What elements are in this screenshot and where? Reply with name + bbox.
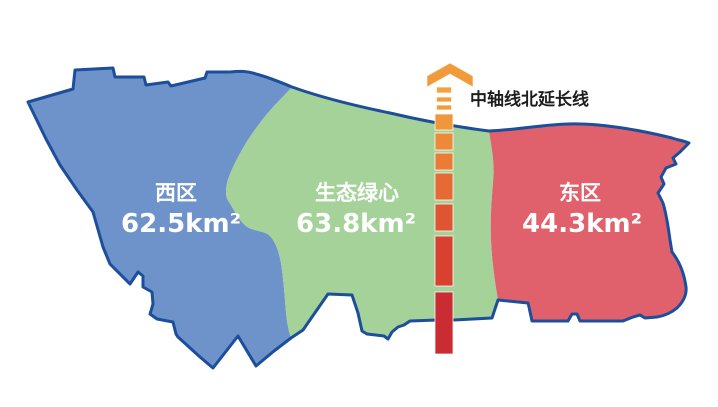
axis-segment bbox=[435, 173, 453, 200]
east-district-area-label: 44.3km² bbox=[522, 209, 642, 239]
map-svg: 中轴线北延长线 西区 62.5km² 生态绿心 63.8km² 东区 44.3k… bbox=[0, 0, 718, 407]
axis-segment bbox=[435, 236, 453, 286]
axis-segment bbox=[435, 292, 453, 354]
green-heart-name-label: 生态绿心 bbox=[315, 181, 399, 205]
axis-segment bbox=[437, 87, 452, 93]
axis-label: 中轴线北延长线 bbox=[470, 89, 589, 110]
west-district-area-label: 62.5km² bbox=[121, 209, 241, 239]
axis-segment bbox=[435, 153, 453, 170]
axis-segment bbox=[435, 204, 453, 231]
axis-segment bbox=[437, 105, 452, 110]
east-district-name-label: 东区 bbox=[559, 181, 601, 205]
planning-map: 中轴线北延长线 西区 62.5km² 生态绿心 63.8km² 东区 44.3k… bbox=[0, 0, 718, 407]
west-district-name-label: 西区 bbox=[155, 181, 197, 205]
axis-segment bbox=[435, 114, 453, 130]
axis-segment bbox=[435, 133, 453, 150]
axis-segment bbox=[437, 97, 452, 102]
axis-line bbox=[435, 87, 453, 354]
green-heart-area-label: 63.8km² bbox=[296, 209, 416, 239]
axis-arrow-icon bbox=[427, 63, 473, 87]
